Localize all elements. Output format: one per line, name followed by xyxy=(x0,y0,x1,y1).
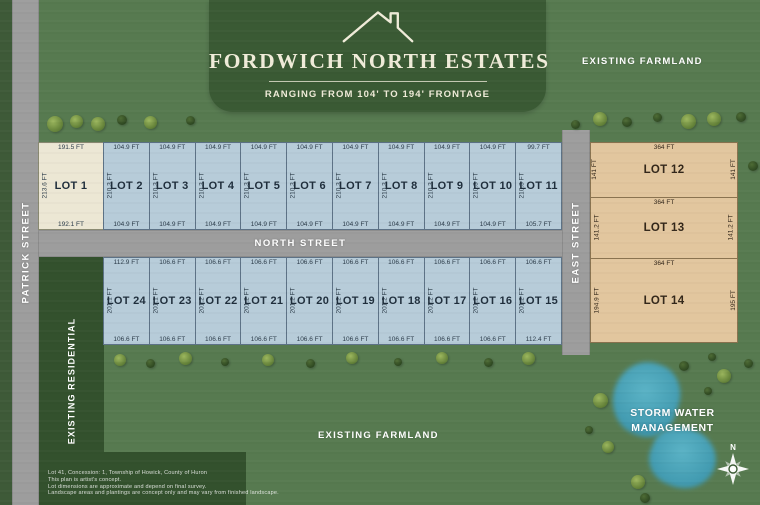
lot-20[interactable]: 106.6 FT201.2 FTLOT 20106.6 FT xyxy=(286,257,333,345)
lot-dim-top: 106.6 FT xyxy=(196,259,241,266)
lot-23[interactable]: 106.6 FT201.1 FTLOT 23106.6 FT xyxy=(149,257,196,345)
tree-icon xyxy=(602,441,614,453)
lot-9[interactable]: 104.9 FT210.3 FTLOT 9104.9 FT xyxy=(424,142,471,230)
lot-dim-bottom: 106.6 FT xyxy=(425,336,470,343)
lot-21[interactable]: 106.6 FT201.2 FTLOT 21106.6 FT xyxy=(240,257,287,345)
lot-label: LOT 23 xyxy=(150,295,195,307)
patrick-street-road: PATRICK STREET xyxy=(12,0,39,505)
compass-north-label: N xyxy=(710,443,756,452)
lot-label: LOT 1 xyxy=(39,180,103,192)
lot-4[interactable]: 104.9 FT210.3 FTLOT 4104.9 FT xyxy=(195,142,242,230)
tree-icon xyxy=(681,114,696,129)
lot-dim-bottom: 106.6 FT xyxy=(333,336,378,343)
page-subtitle: RANGING FROM 104' TO 194' FRONTAGE xyxy=(209,89,546,100)
site-plan: PATRICK STREET EXISTING RESIDENTIAL NORT… xyxy=(0,0,760,505)
lot-14[interactable]: 364 FT194.9 FT195 FTLOT 14 xyxy=(590,258,738,343)
lot-8[interactable]: 104.9 FT210.3 FTLOT 8104.9 FT xyxy=(378,142,425,230)
title-banner: FORDWICH NORTH ESTATES RANGING FROM 104'… xyxy=(209,0,546,112)
lot-label: LOT 11 xyxy=(516,180,561,192)
lot-dim-top: 364 FT xyxy=(591,199,737,206)
lot-label: LOT 8 xyxy=(379,180,424,192)
existing-farmland-bottom-label: EXISTING FARMLAND xyxy=(318,430,439,441)
lot-dim-top: 364 FT xyxy=(591,144,737,151)
lot-dim-top: 104.9 FT xyxy=(379,144,424,151)
lot-dim-top: 106.6 FT xyxy=(470,259,515,266)
tree-icon xyxy=(221,358,229,366)
existing-residential-area: EXISTING RESIDENTIAL xyxy=(39,257,104,505)
lot-dim-top: 112.9 FT xyxy=(104,259,149,266)
lot-3[interactable]: 104.9 FT210.3 FTLOT 3104.9 FT xyxy=(149,142,196,230)
lot-label: LOT 7 xyxy=(333,180,378,192)
existing-farmland-top-label: EXISTING FARMLAND xyxy=(582,56,703,67)
lot-dim-bottom: 104.9 FT xyxy=(379,221,424,228)
lot-label: LOT 22 xyxy=(196,295,241,307)
tree-icon xyxy=(744,359,753,368)
east-street-road: EAST STREET xyxy=(562,130,590,355)
lot-12[interactable]: 364 FT141 FT141 FTLOT 12 xyxy=(590,142,738,198)
east-street-label: EAST STREET xyxy=(571,202,582,284)
lot-label: LOT 13 xyxy=(591,222,737,234)
lot-label: LOT 21 xyxy=(241,295,286,307)
compass-rose: N xyxy=(710,443,756,491)
tree-icon xyxy=(748,161,758,171)
lot-dim-top: 106.6 FT xyxy=(516,259,561,266)
lot-dim-bottom: 104.9 FT xyxy=(241,221,286,228)
lot-13[interactable]: 364 FT141.2 FT141.2 FTLOT 13 xyxy=(590,197,738,259)
lot-label: LOT 4 xyxy=(196,180,241,192)
bottom-lot-row: 112.9 FT201.1 FTLOT 24106.6 FT106.6 FT20… xyxy=(104,257,562,345)
lot-19[interactable]: 106.6 FT201.2 FTLOT 19106.6 FT xyxy=(332,257,379,345)
lot-label: LOT 18 xyxy=(379,295,424,307)
storm-water-management-label: STORM WATER MANAGEMENT xyxy=(585,406,760,436)
lot-dim-bottom: 104.9 FT xyxy=(470,221,515,228)
lot-17[interactable]: 106.6 FT201.2 FTLOT 17106.6 FT xyxy=(424,257,471,345)
page-title: FORDWICH NORTH ESTATES xyxy=(209,49,546,74)
lot-dim-top: 99.7 FT xyxy=(516,144,561,151)
lot-5[interactable]: 104.9 FT210.3 FTLOT 5104.9 FT xyxy=(240,142,287,230)
lot-dim-bottom: 104.9 FT xyxy=(287,221,332,228)
lot-dim-top: 104.9 FT xyxy=(287,144,332,151)
lot-label: LOT 5 xyxy=(241,180,286,192)
lot-dim-bottom: 192.1 FT xyxy=(39,221,103,228)
lot-dim-bottom: 104.9 FT xyxy=(104,221,149,228)
tree-icon xyxy=(394,358,402,366)
lot-dim-top: 106.6 FT xyxy=(150,259,195,266)
title-divider xyxy=(269,81,487,82)
lot-dim-bottom: 106.6 FT xyxy=(104,336,149,343)
lot-label: LOT 2 xyxy=(104,180,149,192)
lot-1[interactable]: 191.5 FT213.6 FTLOT 1192.1 FT xyxy=(38,142,104,230)
lot-dim-top: 104.9 FT xyxy=(241,144,286,151)
lot-11[interactable]: 99.7 FT210.3 FTLOT 11105.7 FT xyxy=(515,142,562,230)
lot-label: LOT 20 xyxy=(287,295,332,307)
lot-dim-top: 104.9 FT xyxy=(104,144,149,151)
lot-dim-top: 104.9 FT xyxy=(425,144,470,151)
lot-dim-bottom: 106.6 FT xyxy=(470,336,515,343)
north-street-label: NORTH STREET xyxy=(255,238,347,249)
lot-10[interactable]: 104.9 FT210.3 FTLOT 10104.9 FT xyxy=(469,142,516,230)
tree-icon xyxy=(736,112,746,122)
tree-icon xyxy=(117,115,127,125)
lot-dim-bottom: 106.6 FT xyxy=(196,336,241,343)
lot-dim-bottom: 106.6 FT xyxy=(379,336,424,343)
lot-dim-top: 104.9 FT xyxy=(470,144,515,151)
lot-dim-top: 364 FT xyxy=(591,260,737,267)
tree-icon xyxy=(262,354,274,366)
lot-label: LOT 24 xyxy=(104,295,149,307)
lot-dim-top: 106.6 FT xyxy=(379,259,424,266)
tree-icon xyxy=(707,112,721,126)
lot-dim-bottom: 104.9 FT xyxy=(196,221,241,228)
tree-icon xyxy=(114,354,126,366)
east-lot-column: 364 FT141 FT141 FTLOT 12364 FT141.2 FT14… xyxy=(590,142,738,343)
tree-icon xyxy=(522,352,535,365)
lot-16[interactable]: 106.6 FT201.2 FTLOT 16106.6 FT xyxy=(469,257,516,345)
lot-dim-top: 106.6 FT xyxy=(333,259,378,266)
tree-icon xyxy=(679,361,689,371)
tree-icon xyxy=(179,352,192,365)
tree-icon xyxy=(144,116,157,129)
lot-dim-top: 191.5 FT xyxy=(39,144,103,151)
tree-icon xyxy=(622,117,632,127)
lot-label: LOT 9 xyxy=(425,180,470,192)
house-roof-icon xyxy=(336,7,420,43)
lot-label: LOT 16 xyxy=(470,295,515,307)
lot-label: LOT 12 xyxy=(591,164,737,176)
lot-dim-bottom: 106.6 FT xyxy=(150,336,195,343)
existing-residential-label: EXISTING RESIDENTIAL xyxy=(67,318,77,445)
lot-2[interactable]: 104.9 FT210.3 FTLOT 2104.9 FT xyxy=(103,142,150,230)
lot-label: LOT 17 xyxy=(425,295,470,307)
lot-dim-top: 104.9 FT xyxy=(333,144,378,151)
lot-dim-bottom: 104.9 FT xyxy=(425,221,470,228)
lot-7[interactable]: 104.9 FT210.3 FTLOT 7104.9 FT xyxy=(332,142,379,230)
lot-dim-bottom: 105.7 FT xyxy=(516,221,561,228)
tree-icon xyxy=(186,116,195,125)
tree-icon xyxy=(571,120,580,129)
lot-dim-bottom: 106.6 FT xyxy=(287,336,332,343)
lot-15[interactable]: 106.6 FT201.2 FTLOT 15112.4 FT xyxy=(515,257,562,345)
tree-icon xyxy=(717,369,731,383)
tree-icon xyxy=(704,387,712,395)
top-lot-row: 191.5 FT213.6 FTLOT 1192.1 FT104.9 FT210… xyxy=(38,142,562,230)
tree-icon xyxy=(653,113,662,122)
lot-dim-bottom: 112.4 FT xyxy=(516,336,561,343)
lot-dim-bottom: 106.6 FT xyxy=(241,336,286,343)
tree-icon xyxy=(593,112,607,126)
lot-label: LOT 10 xyxy=(470,180,515,192)
lot-6[interactable]: 104.9 FT210.3 FTLOT 6104.9 FT xyxy=(286,142,333,230)
tree-icon xyxy=(306,359,315,368)
lot-dim-top: 104.9 FT xyxy=(196,144,241,151)
lot-dim-top: 104.9 FT xyxy=(150,144,195,151)
tree-icon xyxy=(47,116,63,132)
lot-dim-top: 106.6 FT xyxy=(241,259,286,266)
lot-dim-bottom: 104.9 FT xyxy=(150,221,195,228)
tree-icon xyxy=(484,358,493,367)
left-edge-strip xyxy=(0,0,12,505)
lot-22[interactable]: 106.6 FT201.2 FTLOT 22106.6 FT xyxy=(195,257,242,345)
lot-label: LOT 19 xyxy=(333,295,378,307)
tree-icon xyxy=(91,117,105,131)
tree-icon xyxy=(436,352,448,364)
tree-icon xyxy=(146,359,155,368)
lot-24[interactable]: 112.9 FT201.1 FTLOT 24106.6 FT xyxy=(103,257,150,345)
lot-dim-top: 106.6 FT xyxy=(287,259,332,266)
tree-icon xyxy=(640,493,650,503)
disclaimer-text: Lot 41, Concession: 1, Township of Howic… xyxy=(48,470,279,497)
lot-dim-top: 106.6 FT xyxy=(425,259,470,266)
tree-icon xyxy=(70,115,83,128)
lot-label: LOT 14 xyxy=(591,295,737,307)
lot-18[interactable]: 106.6 FT201.2 FTLOT 18106.6 FT xyxy=(378,257,425,345)
patrick-street-label: PATRICK STREET xyxy=(20,202,31,304)
lot-label: LOT 6 xyxy=(287,180,332,192)
north-street-road: NORTH STREET xyxy=(39,230,590,257)
lot-label: LOT 3 xyxy=(150,180,195,192)
tree-icon xyxy=(708,353,716,361)
tree-icon xyxy=(631,475,645,489)
compass-star-icon xyxy=(716,452,750,486)
tree-icon xyxy=(346,352,358,364)
lot-label: LOT 15 xyxy=(516,295,561,307)
lot-dim-bottom: 104.9 FT xyxy=(333,221,378,228)
